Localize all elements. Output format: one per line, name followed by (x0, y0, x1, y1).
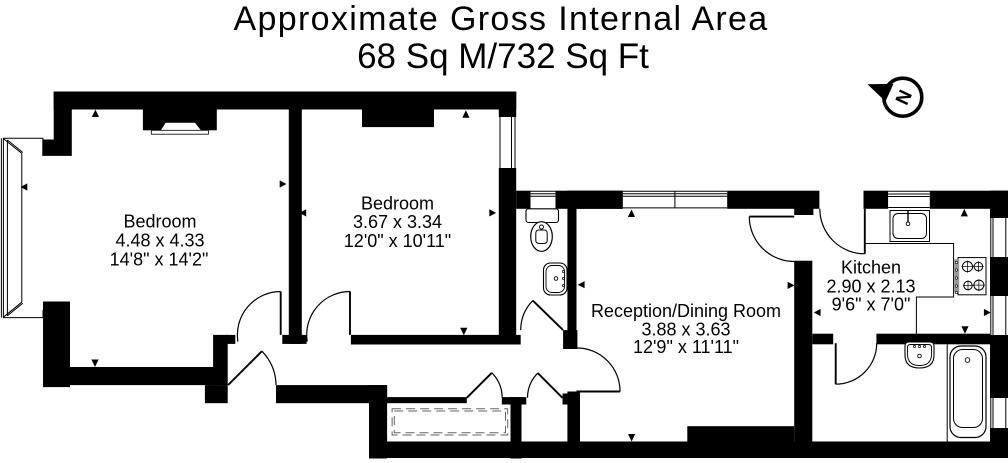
svg-text:3.67 x 3.34: 3.67 x 3.34 (353, 212, 442, 232)
svg-text:12'0" x 10'11": 12'0" x 10'11" (344, 231, 451, 251)
svg-text:Bedroom: Bedroom (361, 194, 434, 214)
svg-text:Reception/Dining Room: Reception/Dining Room (591, 301, 781, 321)
svg-text:12'9" x 11'11": 12'9" x 11'11" (633, 337, 739, 357)
svg-text:14'8" x 14'2": 14'8" x 14'2" (110, 250, 209, 270)
svg-text:9'6" x 7'0": 9'6" x 7'0" (832, 295, 911, 315)
svg-text:Kitchen: Kitchen (841, 258, 901, 278)
svg-text:Bedroom: Bedroom (123, 212, 196, 232)
svg-text:68 Sq M/732 Sq Ft: 68 Sq M/732 Sq Ft (357, 37, 649, 76)
svg-text:2.90 x 2.13: 2.90 x 2.13 (826, 277, 915, 297)
svg-text:4.48 x 4.33: 4.48 x 4.33 (115, 231, 204, 251)
svg-text:Approximate Gross Internal Are: Approximate Gross Internal Area (233, 0, 768, 38)
